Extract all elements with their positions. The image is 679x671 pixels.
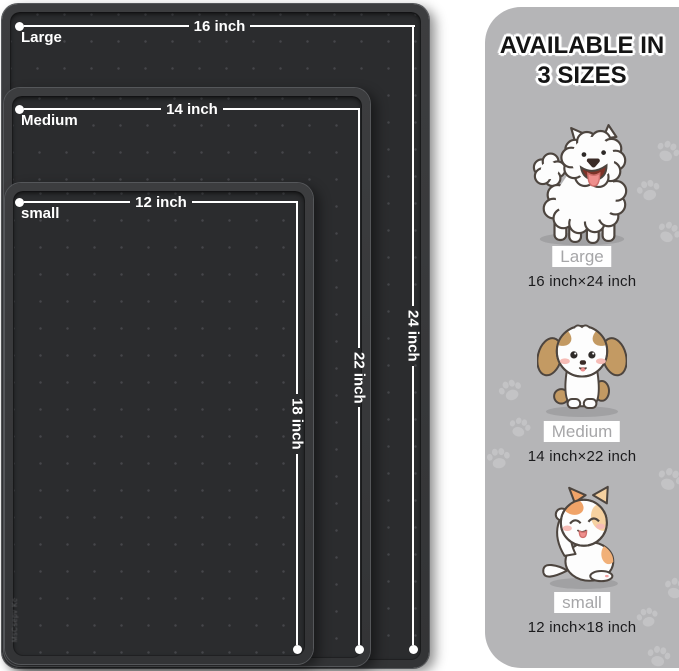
height-dimension-line-small: 18 inch bbox=[287, 203, 307, 654]
width-dimension-label-small: 12 inch bbox=[130, 194, 192, 211]
paw-print-icon bbox=[632, 174, 665, 207]
paw-print-icon bbox=[485, 443, 514, 473]
sizes-panel: AVAILABLE IN 3 SIZES bbox=[485, 7, 679, 668]
paw-print-icon bbox=[659, 572, 679, 605]
height-dimension-line-large: 24 inch bbox=[403, 27, 423, 654]
size-label-box-large: Large bbox=[552, 246, 611, 267]
paw-print-icon bbox=[493, 373, 528, 408]
panel-title: AVAILABLE IN 3 SIZES bbox=[485, 31, 679, 91]
panel-title-line1: AVAILABLE IN bbox=[485, 31, 679, 61]
mat-small bbox=[5, 183, 313, 664]
height-dimension-label-medium: 22 inch bbox=[351, 348, 368, 408]
dimension-end-dot bbox=[409, 645, 418, 654]
width-dimension-line-large: 16 inch bbox=[15, 18, 415, 34]
cat-illustration bbox=[536, 484, 628, 595]
dimension-end-dot bbox=[15, 22, 24, 31]
paw-print-icon bbox=[651, 461, 679, 498]
size-label-box-medium: Medium bbox=[544, 421, 620, 442]
paw-print-icon bbox=[632, 602, 663, 633]
width-dimension-label-large: 16 inch bbox=[189, 18, 251, 35]
dimension-end-dot bbox=[355, 645, 364, 654]
size-dimensions-medium: 14 inch×22 inch bbox=[528, 448, 637, 465]
width-dimension-label-medium: 14 inch bbox=[161, 101, 223, 118]
dimension-end-dot bbox=[15, 105, 24, 114]
paw-print-icon bbox=[504, 412, 535, 443]
height-dimension-label-small: 18 inch bbox=[289, 394, 306, 454]
size-dimensions-large: 16 inch×24 inch bbox=[528, 273, 637, 290]
width-dimension-line-medium: 14 inch bbox=[15, 101, 360, 117]
mat-small-surface bbox=[13, 191, 305, 656]
paw-print-icon bbox=[643, 641, 674, 668]
dimension-end-dot bbox=[293, 645, 302, 654]
watermark-text: MsCsepv Kc bbox=[12, 598, 19, 642]
size-label-box-small: small bbox=[554, 592, 610, 613]
samoyed-dog-illustration bbox=[528, 124, 636, 252]
shih-tzu-illustration bbox=[537, 317, 627, 423]
dimension-end-dot bbox=[15, 198, 24, 207]
panel-title-line2: 3 SIZES bbox=[485, 61, 679, 91]
height-dimension-line-medium: 22 inch bbox=[349, 110, 369, 654]
size-dimensions-small: 12 inch×18 inch bbox=[528, 619, 637, 636]
width-dimension-line-small: 12 inch bbox=[15, 194, 298, 210]
product-image: Large Medium small 16 inch 14 inch 12 in… bbox=[0, 0, 679, 671]
paw-print-icon bbox=[651, 215, 679, 251]
paw-print-icon bbox=[650, 134, 679, 169]
height-dimension-label-large: 24 inch bbox=[405, 306, 422, 366]
